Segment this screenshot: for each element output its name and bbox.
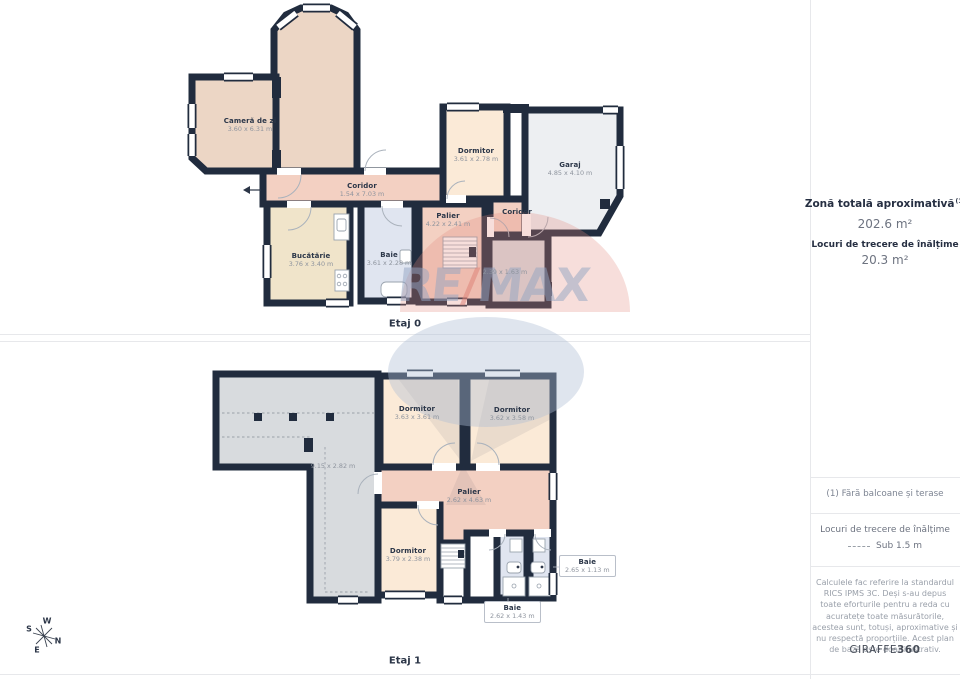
floor0-plan [185, 0, 635, 315]
room-label-pod: 9.15 x 2.82 m [311, 462, 356, 470]
legend-row: Sub 1.5 m [810, 541, 960, 551]
brand-name: GIRAFFE [850, 644, 898, 656]
room-label-palier-etaj1: Palier 2.62 x 4.63 m [447, 488, 492, 504]
dashed-line-sample [848, 546, 870, 547]
total-area-label: Zonă totală aproximativă(1) [810, 198, 960, 210]
floor1-title: Etaj 1 [389, 656, 421, 667]
passage-area-value: 20.3 m² [810, 253, 960, 267]
total-area-value: 202.6 m² [810, 217, 960, 231]
legend-title: Locuri de trecere de înălțime [810, 525, 960, 535]
room-label-coridor-mic: Coridor [502, 208, 532, 216]
floorplan-page: RE/MAX Cameră de zi 3.60 x 6.31 m Corido… [0, 0, 960, 679]
divider-floor1-top [0, 341, 810, 342]
stairs-etaj0 [443, 237, 477, 268]
brand-logo: GIRAFFE360 [810, 644, 960, 656]
room-label-camera-tehnica: 2.39 x 1.63 m [483, 268, 528, 276]
callout-baie-dreapta: Baie 2.65 x 1.13 m [559, 555, 616, 577]
compass-north: N [55, 637, 62, 646]
compass-south: S [26, 625, 32, 634]
divider-floor0-bottom [0, 334, 810, 335]
room-label-dormitor-etaj0: Dormitor 3.61 x 2.78 m [454, 147, 499, 163]
room-pod [216, 374, 378, 600]
divider-sidebar-1 [810, 477, 960, 478]
room-label-garaj: Garaj 4.85 x 4.10 m [548, 161, 593, 177]
room-label-coridor: Coridor 1.54 x 7.03 m [340, 182, 385, 198]
legend-value: Sub 1.5 m [876, 541, 922, 551]
sidebar-footnote: (1) Fără balcoane și terase [810, 489, 960, 499]
passage-area-label: Locuri de trecere de înălțime [810, 240, 960, 250]
entrance-arrow [243, 186, 261, 194]
floor0-title: Etaj 0 [389, 319, 421, 330]
room-label-bucatarie: Bucătărie 3.76 x 3.40 m [289, 252, 334, 268]
total-area-footnote-marker: (1) [956, 198, 960, 210]
room-label-dormitor-jos: Dormitor 3.79 x 2.38 m [386, 547, 431, 563]
room-camera-de-zi-hall [192, 8, 357, 171]
stairs-etaj1 [441, 544, 465, 568]
divider-sidebar-3 [810, 566, 960, 567]
brand-suffix: 360 [897, 644, 920, 656]
callout-baie-jos: Baie 2.62 x 1.43 m [484, 601, 541, 623]
room-label-dormitor-dreapta: Dormitor 3.62 x 3.58 m [490, 406, 535, 422]
divider-page-bottom [0, 674, 960, 675]
room-label-dormitor-stanga: Dormitor 3.63 x 3.61 m [395, 405, 440, 421]
divider-sidebar-2 [810, 513, 960, 514]
compass-east: E [34, 646, 39, 655]
room-label-baie-etaj0: Baie 3.61 x 2.28 m [367, 251, 412, 267]
compass-west: W [43, 617, 52, 626]
room-label-palier-etaj0: Palier 4.22 x 2.41 m [426, 212, 471, 228]
divider-sidebar [810, 0, 811, 679]
room-label-camera-de-zi: Cameră de zi 3.60 x 6.31 m [224, 117, 276, 133]
